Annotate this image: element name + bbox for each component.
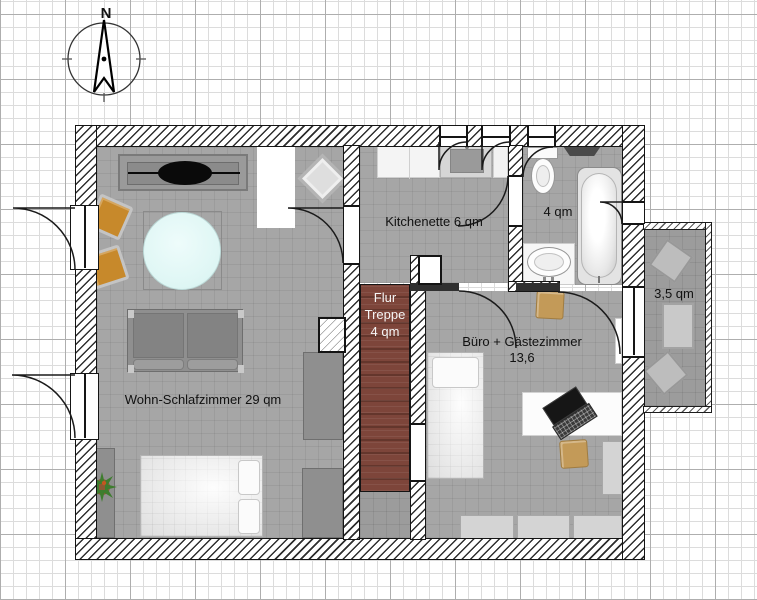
- sofa-seat-cushion: [133, 359, 184, 370]
- cabinet-right-2: [302, 468, 343, 538]
- stair-landing-floor: [360, 492, 410, 538]
- kitchen-appliance: [493, 143, 508, 178]
- wardrobe: [257, 147, 295, 228]
- label-kitchenette: Kitchenette 6 qm: [360, 214, 508, 230]
- label-buero-line1: Büro + Gästezimmer: [426, 334, 618, 350]
- bathtub-basin: [581, 173, 617, 278]
- window-swing-left-1: [13, 208, 75, 270]
- toilet-bowl-inner: [536, 165, 550, 187]
- label-wohnschlafzimmer: Wohn-Schlafzimmer 29 qm: [98, 392, 308, 408]
- outer-wall-left-1: [75, 125, 97, 207]
- sideboard: [118, 154, 248, 191]
- sofa-armrest: [128, 365, 134, 373]
- office-chair-2: [559, 439, 589, 469]
- bathtub: [577, 167, 622, 285]
- wall-shaft: [318, 317, 346, 353]
- label-buero: Büro + Gästezimmer 13,6: [426, 334, 618, 366]
- wall-corridor-right-lower: [410, 481, 426, 540]
- outer-wall-bottom: [75, 538, 645, 560]
- sofa-back-cushion: [187, 313, 238, 358]
- wall-corridor-left-upper: [343, 145, 360, 206]
- balcony-rail-bottom: [643, 406, 712, 413]
- outer-wall-left-2: [75, 268, 97, 375]
- door-gap-wohnzimmer: [343, 206, 360, 264]
- window-top-1: [440, 125, 467, 147]
- balcony-rail-right: [705, 222, 712, 413]
- decor-bowl: [158, 161, 212, 185]
- bath-sink-inner: [534, 253, 564, 271]
- single-bed: [427, 352, 484, 479]
- sofa-armrest: [238, 310, 244, 318]
- north-arrow-icon: [62, 4, 152, 104]
- outer-wall-top: [75, 125, 440, 147]
- bed-pillow: [238, 499, 260, 534]
- outer-wall-right-3: [622, 357, 645, 560]
- outer-wall-top-mid: [510, 125, 528, 147]
- wall-buero-top-2: [516, 283, 560, 291]
- kitchen-counter: [377, 144, 440, 178]
- round-table: [143, 212, 221, 290]
- outer-wall-right-2: [622, 224, 645, 287]
- kitchen-sink-basin: [450, 149, 484, 173]
- sofa: [127, 309, 243, 372]
- cabinet-right-wall: [602, 441, 622, 495]
- label-flur: Flur Treppe 4 qm: [360, 289, 410, 340]
- label-flur-line1: Flur: [360, 289, 410, 306]
- door-gap-bath-right: [622, 202, 645, 224]
- bathtub-drain: [598, 276, 600, 283]
- balcony-table: [662, 303, 694, 349]
- toilet-bowl: [531, 158, 555, 194]
- door-gap-bathroom: [508, 176, 523, 226]
- plant-flower: [102, 481, 106, 485]
- label-bad: 4 qm: [523, 204, 593, 220]
- outer-wall-top-pier: [467, 125, 482, 147]
- cabinet-right-1: [303, 352, 343, 440]
- kitchen-sink-unit: [440, 143, 492, 178]
- sideboard-low-1: [460, 515, 514, 540]
- door-gap-buero-left-wall: [410, 424, 426, 481]
- wall-stub: [418, 255, 442, 285]
- wall-kitchen-bath-lower: [508, 226, 523, 285]
- sideboard-low-3: [573, 515, 622, 540]
- sofa-armrest: [128, 310, 134, 318]
- bed-pillow: [238, 460, 260, 495]
- label-buero-line2: 13,6: [426, 350, 618, 366]
- kitchen-counter-seam: [409, 145, 410, 179]
- balcony-door: [622, 287, 645, 357]
- sideboard-low-2: [517, 515, 570, 540]
- wall-kitchen-bath-upper: [508, 145, 523, 176]
- label-flur-line2: Treppe: [360, 306, 410, 323]
- sofa-armrest: [238, 365, 244, 373]
- window-swing-left-2: [12, 375, 75, 438]
- sofa-back-cushion: [133, 313, 184, 358]
- outer-wall-right-1: [622, 125, 645, 202]
- label-balkon: 3,5 qm: [643, 286, 705, 302]
- window-left-1: [70, 205, 99, 270]
- window-top-2: [482, 125, 510, 147]
- office-chair-1: [535, 290, 564, 319]
- sofa-seat-cushion: [187, 359, 238, 370]
- label-flur-line3: 4 qm: [360, 323, 410, 340]
- window-bath-top: [528, 125, 555, 147]
- floorplan-canvas: N Wohn-Schlafzimmer 29 qm Kitchenette 6 …: [0, 0, 757, 600]
- wall-corridor-left-lower: [343, 264, 360, 540]
- window-left-2: [70, 373, 99, 440]
- balcony-rail-top: [643, 222, 712, 230]
- compass-rose: N: [62, 4, 152, 104]
- double-bed: [140, 455, 263, 537]
- bath-sink: [527, 247, 571, 277]
